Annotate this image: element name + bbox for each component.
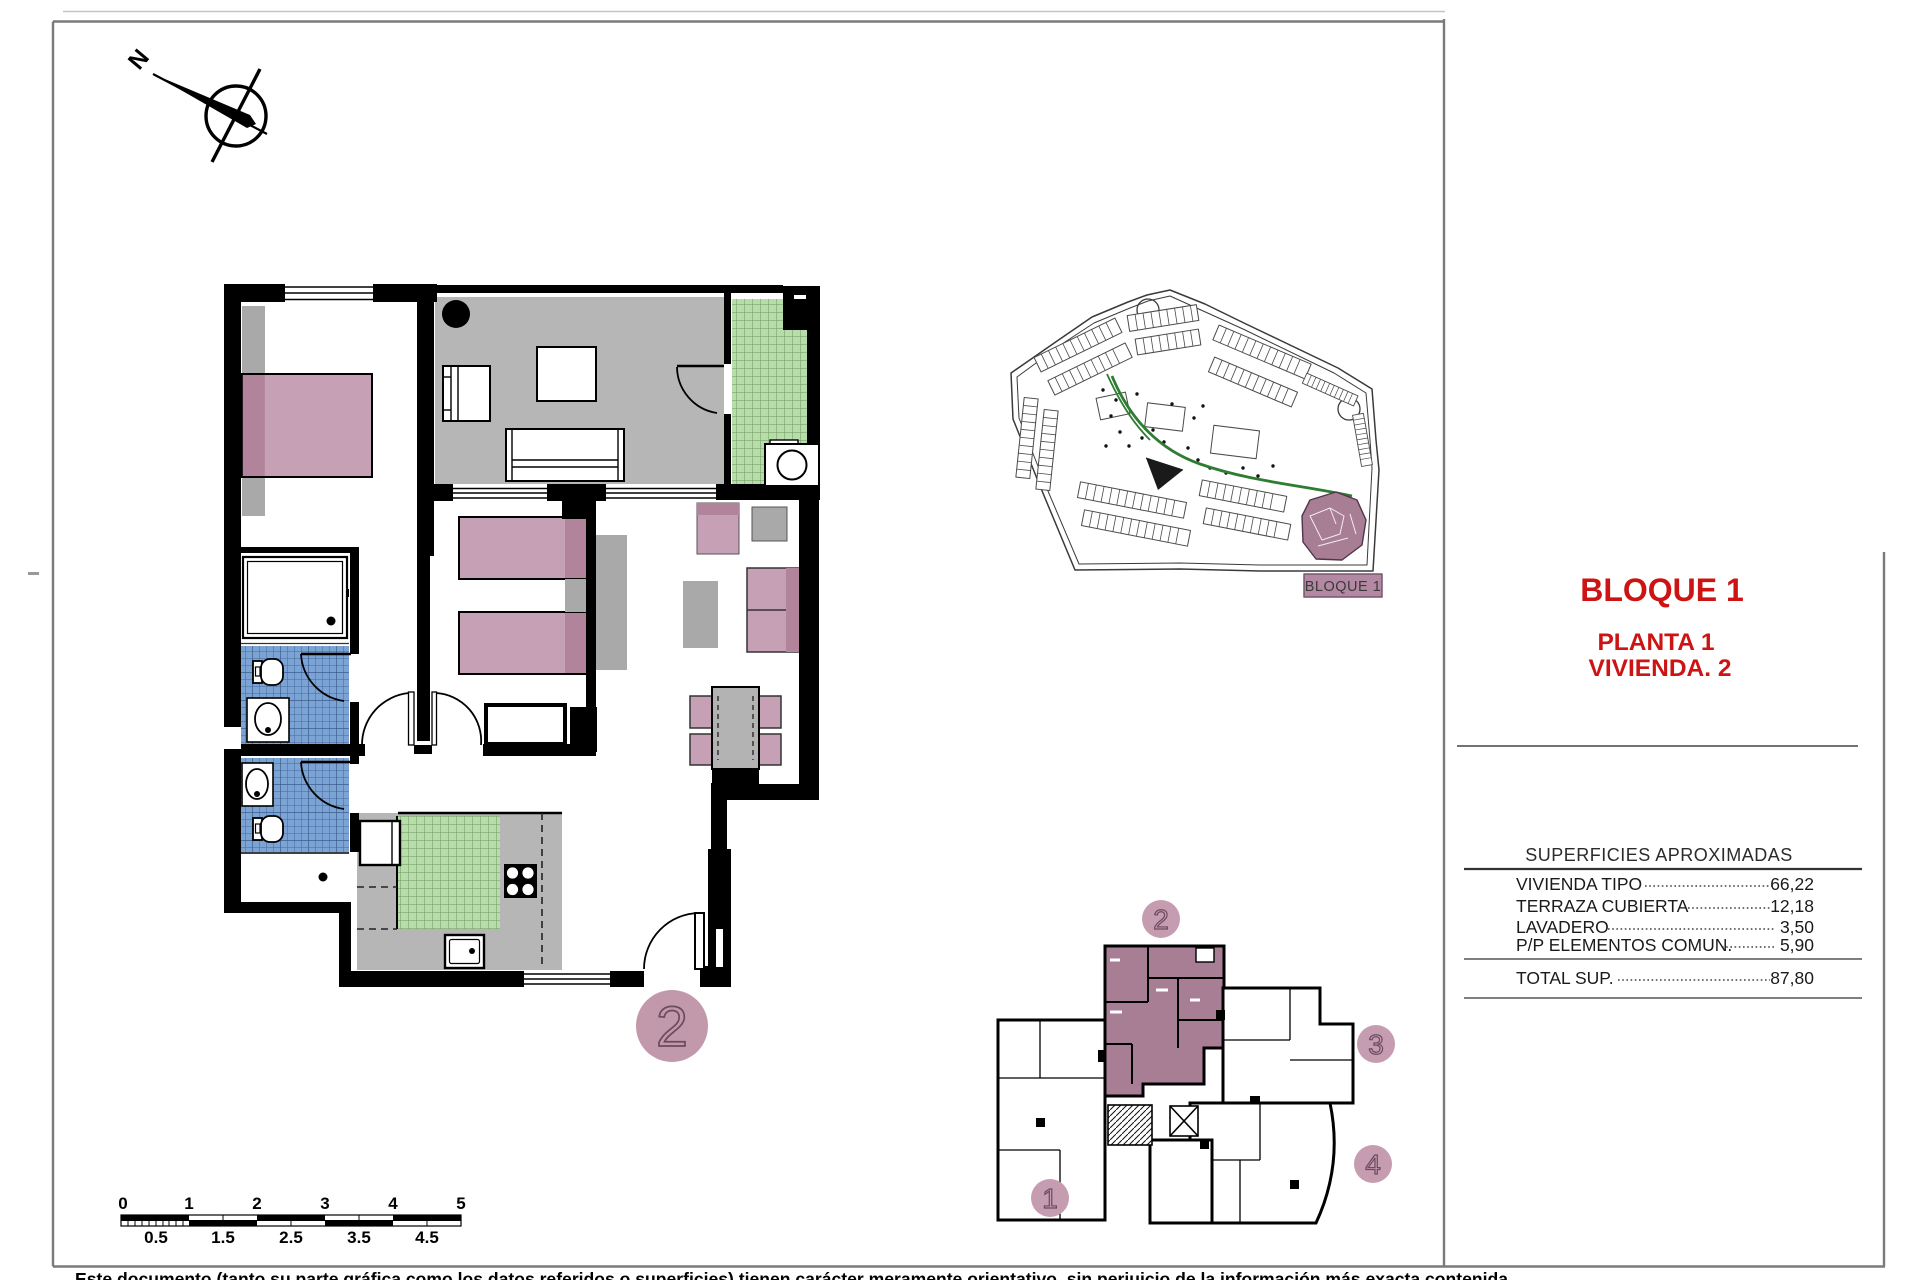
svg-text:TOTAL SUP.: TOTAL SUP.	[1516, 968, 1614, 988]
svg-text:5,90: 5,90	[1780, 935, 1814, 955]
svg-text:BLOQUE 1: BLOQUE 1	[1580, 572, 1744, 608]
svg-text:66,22: 66,22	[1770, 874, 1814, 894]
svg-text:0: 0	[118, 1194, 127, 1213]
svg-text:87,80: 87,80	[1770, 968, 1814, 988]
svg-text:3: 3	[320, 1194, 329, 1213]
svg-text:2.5: 2.5	[279, 1228, 303, 1247]
svg-text:3,50: 3,50	[1780, 917, 1814, 937]
svg-text:VIVIENDA TIPO: VIVIENDA TIPO	[1516, 874, 1642, 894]
svg-text:P/P ELEMENTOS COMUN.: P/P ELEMENTOS COMUN.	[1516, 935, 1732, 955]
svg-text:3: 3	[1368, 1029, 1384, 1060]
svg-text:TERRAZA CUBIERTA: TERRAZA CUBIERTA	[1516, 896, 1689, 916]
svg-text:4: 4	[388, 1194, 398, 1213]
svg-text:1: 1	[184, 1194, 193, 1213]
svg-text:SUPERFICIES APROXIMADAS: SUPERFICIES APROXIMADAS	[1525, 845, 1793, 865]
svg-text:12,18: 12,18	[1770, 896, 1814, 916]
svg-text:3.5: 3.5	[347, 1228, 371, 1247]
svg-text:VIVIENDA. 2: VIVIENDA. 2	[1589, 655, 1732, 682]
svg-text:5: 5	[456, 1194, 465, 1213]
svg-text:1.5: 1.5	[211, 1228, 235, 1247]
svg-text:2: 2	[1153, 904, 1169, 935]
svg-text:4.5: 4.5	[415, 1228, 439, 1247]
svg-text:4: 4	[1365, 1149, 1381, 1180]
svg-text:LAVADERO: LAVADERO	[1516, 917, 1609, 937]
svg-text:BLOQUE 1: BLOQUE 1	[1305, 579, 1382, 595]
svg-text:0.5: 0.5	[144, 1228, 168, 1247]
svg-text:2: 2	[252, 1194, 261, 1213]
svg-text:1: 1	[1042, 1183, 1058, 1214]
svg-text:PLANTA 1: PLANTA 1	[1597, 629, 1714, 656]
svg-text:2: 2	[656, 995, 688, 1059]
svg-text:Este documento (tanto su parte: Este documento (tanto su parte gráfica c…	[75, 1269, 1508, 1280]
